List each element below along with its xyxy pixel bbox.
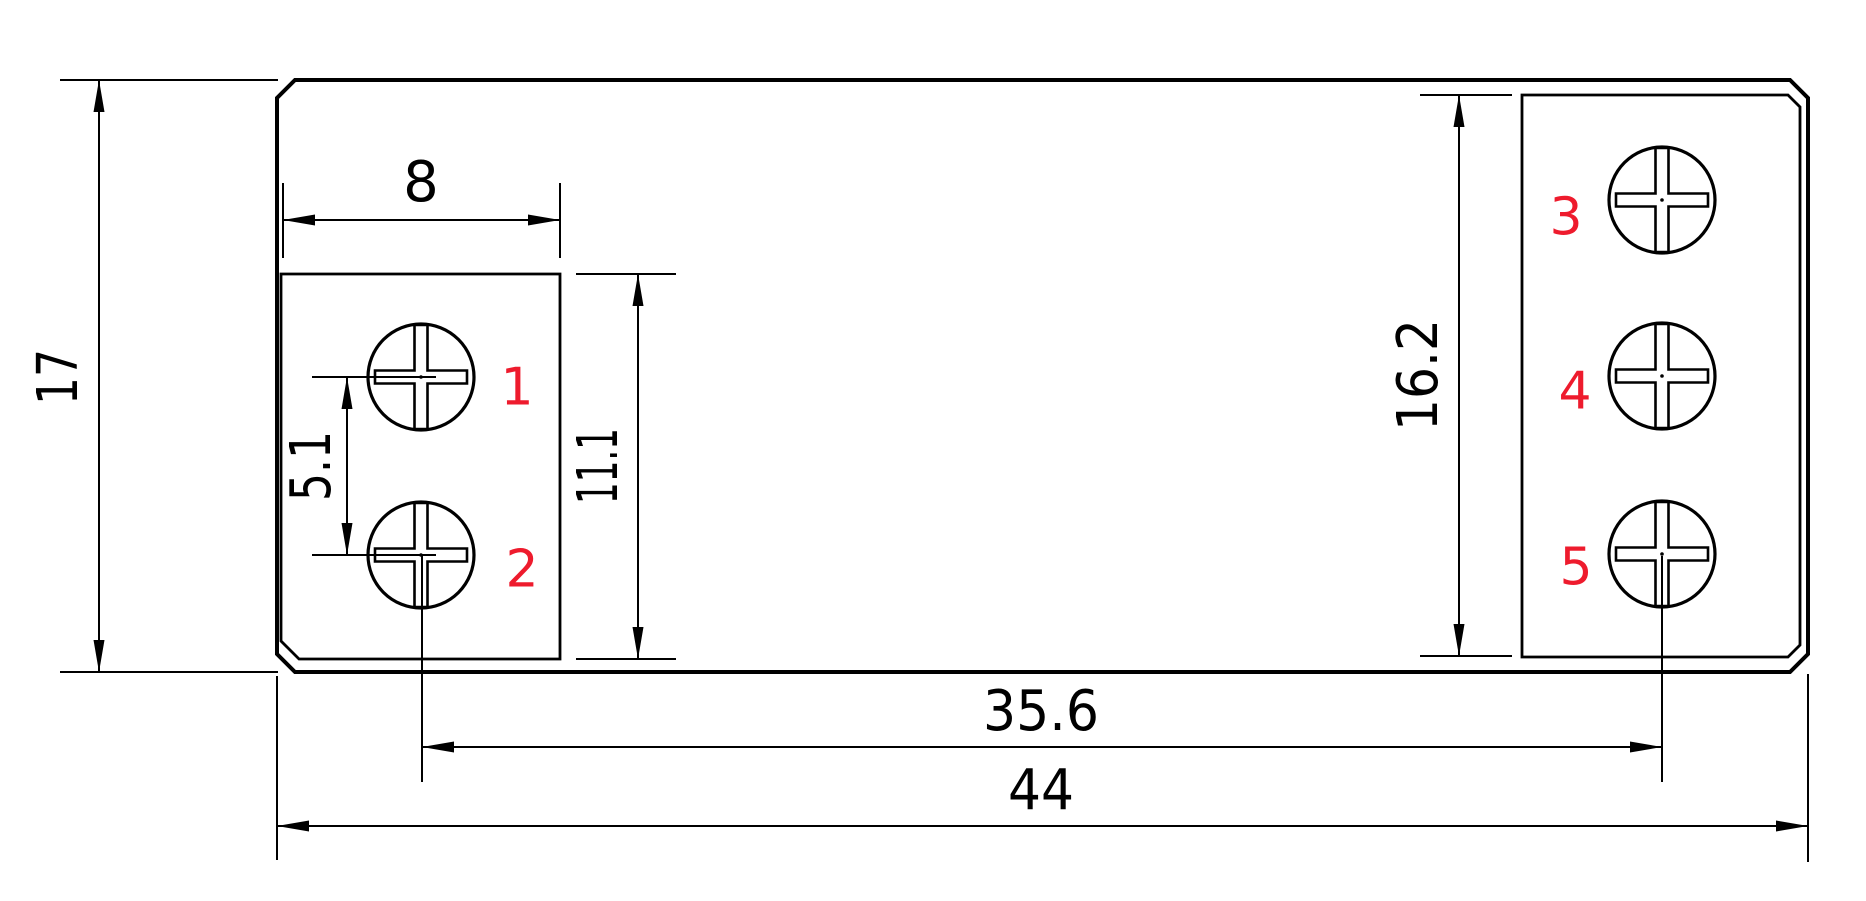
arrowhead-up bbox=[633, 274, 644, 306]
arrowhead-right bbox=[1776, 821, 1808, 832]
dim-label: 17 bbox=[26, 349, 91, 405]
dim-label: 5.1 bbox=[279, 431, 344, 501]
arrowhead-up bbox=[94, 80, 105, 112]
dim-label: 8 bbox=[403, 150, 439, 215]
terminal-number-1: 1 bbox=[500, 358, 533, 418]
dim-left-block-height: 11.1 bbox=[566, 274, 676, 659]
screw-center-mark bbox=[1660, 552, 1664, 556]
arrowhead-left bbox=[277, 821, 309, 832]
arrowhead-down bbox=[94, 640, 105, 672]
dim-terminal-span: 35.6 bbox=[422, 556, 1662, 782]
arrowhead-down bbox=[1454, 624, 1465, 656]
screw-center-mark bbox=[1660, 198, 1664, 202]
dim-overall-height: 17 bbox=[26, 80, 278, 672]
dim-label: 44 bbox=[1008, 758, 1074, 823]
screw-center-mark bbox=[1660, 374, 1664, 378]
dim-label: 16.2 bbox=[1386, 319, 1451, 431]
dim-right-block-height: 16.2 bbox=[1386, 95, 1512, 656]
screw-terminal-3 bbox=[1609, 147, 1715, 253]
terminal-number-4: 4 bbox=[1558, 362, 1591, 422]
terminal-number-2: 2 bbox=[505, 540, 538, 600]
arrowhead-right bbox=[1630, 742, 1662, 753]
arrowhead-left bbox=[283, 215, 315, 226]
arrowhead-up bbox=[1454, 95, 1465, 127]
arrowhead-down bbox=[633, 627, 644, 659]
arrowhead-left bbox=[422, 742, 454, 753]
arrowhead-right bbox=[528, 215, 560, 226]
dimension-drawing: 17 8 5.1 11.1 16.2 bbox=[0, 0, 1866, 901]
screw-terminal-4 bbox=[1609, 323, 1715, 429]
dim-label: 11.1 bbox=[566, 428, 631, 504]
terminal-number-3: 3 bbox=[1549, 188, 1582, 248]
terminal-number-5: 5 bbox=[1559, 538, 1592, 598]
technical-drawing-canvas: 17 8 5.1 11.1 16.2 bbox=[0, 0, 1866, 901]
arrowhead-down bbox=[342, 523, 353, 555]
dim-label: 35.6 bbox=[983, 679, 1099, 744]
arrowhead-up bbox=[342, 377, 353, 409]
dim-left-block-width: 8 bbox=[283, 150, 560, 258]
